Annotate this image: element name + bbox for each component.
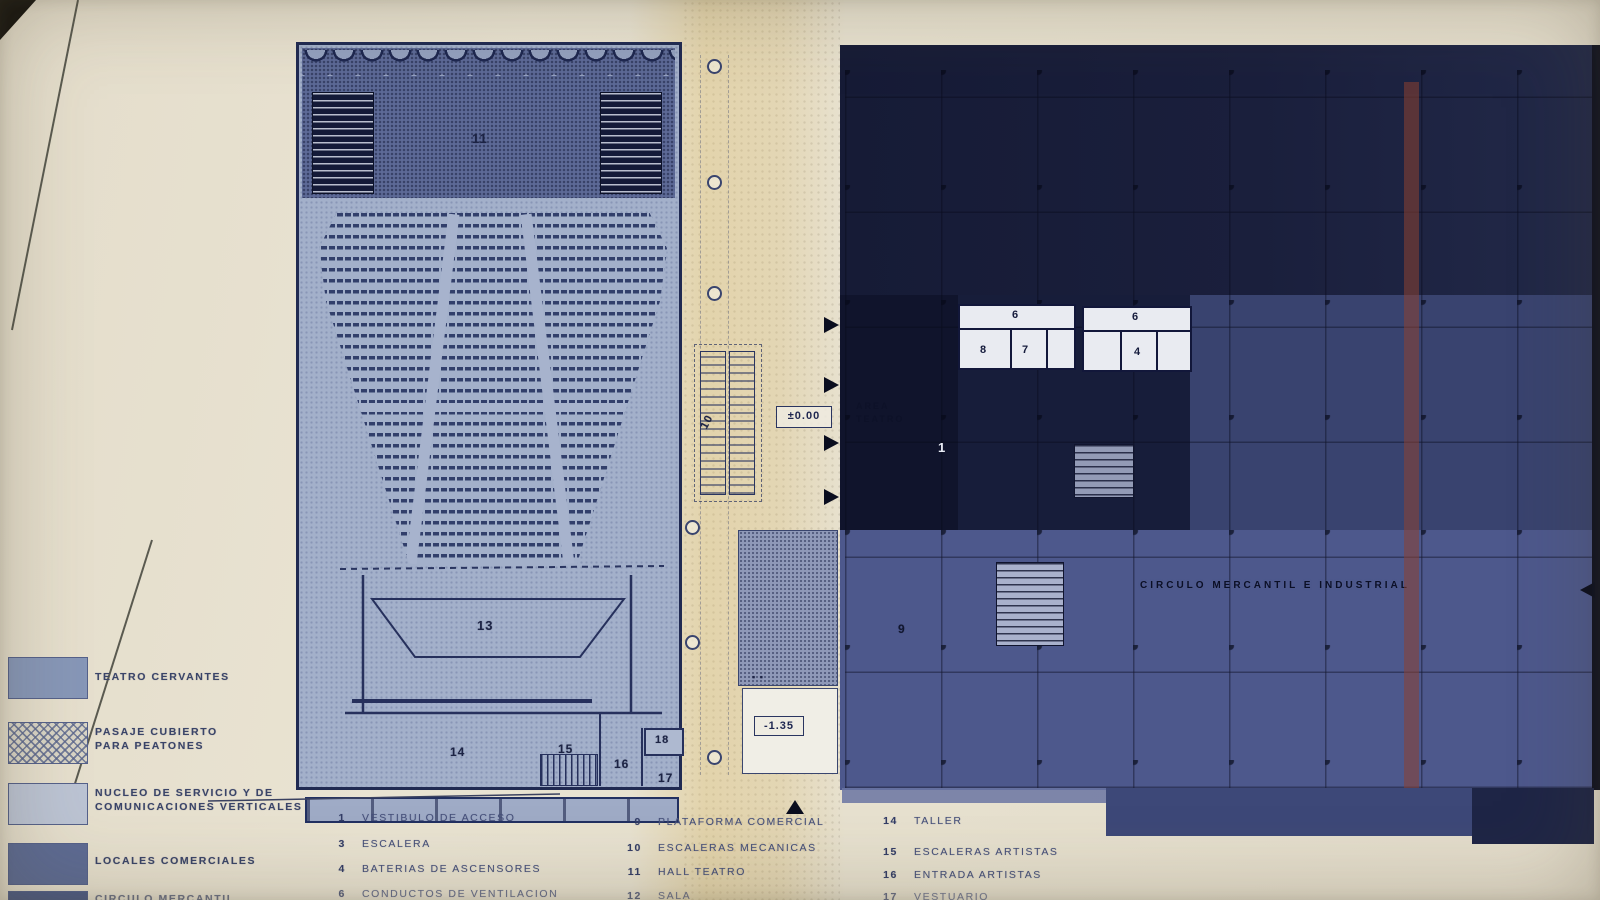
room-divider bbox=[1120, 332, 1122, 372]
survey-dots: ▪ ▪ bbox=[752, 672, 764, 682]
legend-label: PARA PEATONES bbox=[95, 740, 204, 752]
label-room-18: 18 bbox=[655, 734, 669, 746]
room-divider bbox=[1046, 330, 1048, 370]
label-lobby-1: 1 bbox=[938, 440, 946, 455]
architectural-plan-scan: 11 13 14 15 16 17 18 PLAZA PABLO CAZARO … bbox=[0, 0, 1600, 900]
building-bottom-step-1 bbox=[842, 788, 1106, 803]
legend-swatch-pasaje bbox=[8, 722, 88, 764]
key-row: 1VESTIBULO DE ACCESO bbox=[318, 812, 516, 824]
north-arrow-icon bbox=[786, 800, 804, 814]
aisle-left bbox=[405, 214, 459, 565]
label-room-7: 7 bbox=[1022, 344, 1029, 356]
key-row: 12SALA bbox=[614, 890, 691, 900]
key-row: 14TALLER bbox=[870, 815, 963, 827]
label-room-14: 14 bbox=[450, 745, 465, 759]
column-marker-icon bbox=[685, 635, 700, 650]
leader-line-top bbox=[12, 0, 78, 330]
legend-swatch-locales bbox=[8, 843, 88, 885]
key-row: 4BATERIAS DE ASCENSORES bbox=[318, 863, 541, 875]
building-bottom-step-2 bbox=[1106, 788, 1492, 836]
legend-label: TEATRO CERVANTES bbox=[95, 671, 230, 683]
column-marker-icon bbox=[707, 175, 722, 190]
escalator-lane-2 bbox=[729, 351, 755, 495]
hall-stair-right bbox=[600, 92, 662, 194]
service-group-b: 6 4 bbox=[1082, 306, 1192, 372]
entrance-arrow-icon bbox=[824, 489, 839, 505]
building-stairs-block bbox=[996, 562, 1064, 646]
legend-swatch-nucleo bbox=[8, 783, 88, 825]
entrance-arrow-icon bbox=[824, 435, 839, 451]
hall-stair-left bbox=[312, 92, 374, 194]
service-group-a: 6 8 7 bbox=[958, 304, 1076, 370]
level-marker-zero: ±0.00 bbox=[776, 406, 832, 428]
stairs-room-15 bbox=[540, 754, 598, 786]
aisle-right bbox=[520, 214, 574, 565]
legend-label: CIRCULO MERCANTIL bbox=[95, 893, 235, 900]
label-duct-a: 6 bbox=[1012, 309, 1019, 321]
label-room-4: 4 bbox=[1134, 346, 1141, 358]
key-row: 17VESTUARIO bbox=[870, 891, 989, 900]
legend-label: LOCALES COMERCIALES bbox=[95, 855, 256, 867]
key-row: 3ESCALERA bbox=[318, 838, 431, 850]
legend-label: PASAJE CUBIERTO bbox=[95, 726, 218, 738]
label-platform-9: 9 bbox=[898, 622, 906, 636]
building-right-edge bbox=[1592, 45, 1600, 790]
key-row: 11HALL TEATRO bbox=[614, 866, 746, 878]
label-room-8: 8 bbox=[980, 344, 987, 356]
entrance-arrow-icon bbox=[824, 377, 839, 393]
label-duct-b: 6 bbox=[1132, 311, 1139, 323]
theater-hall bbox=[302, 48, 675, 198]
area-teatro-label: AREA TEATRO bbox=[856, 400, 904, 426]
legend-label: COMUNICACIONES VERTICALES bbox=[95, 801, 302, 813]
building-top-band bbox=[840, 45, 1600, 295]
building-name-label: CIRCULO MERCANTIL E INDUSTRIAL bbox=[1140, 580, 1440, 591]
label-room-16: 16 bbox=[614, 757, 629, 771]
column-marker-icon bbox=[707, 59, 722, 74]
column-marker-icon bbox=[707, 750, 722, 765]
passage-lower-block bbox=[738, 530, 838, 686]
key-row: 10ESCALERAS MECANICAS bbox=[614, 842, 817, 854]
seating-area bbox=[319, 213, 667, 565]
building-mid-right bbox=[1190, 295, 1600, 530]
key-row: 6CONDUCTOS DE VENTILACION bbox=[318, 888, 558, 900]
corner-wedge bbox=[0, 0, 36, 40]
legend-swatch-circulo bbox=[8, 891, 88, 900]
building-lower bbox=[840, 530, 1600, 790]
building-bottom-step-3 bbox=[1472, 788, 1594, 844]
legend-swatch-teatro bbox=[8, 657, 88, 699]
label-hall: 11 bbox=[472, 131, 488, 146]
key-row: 15ESCALERAS ARTISTAS bbox=[870, 846, 1059, 858]
theater-plan bbox=[296, 42, 682, 790]
label-room-17: 17 bbox=[658, 771, 673, 785]
label-stage: 13 bbox=[477, 618, 493, 633]
key-row: 16ENTRADA ARTISTAS bbox=[870, 869, 1042, 881]
duct-strip-b: 6 bbox=[1084, 308, 1190, 332]
column-marker-icon bbox=[707, 286, 722, 301]
entrance-arrow-icon bbox=[824, 317, 839, 333]
key-row: 9PLATAFORMA COMERCIAL bbox=[614, 816, 824, 828]
edge-arrow-icon bbox=[1580, 582, 1595, 598]
entrance-door-arcs bbox=[302, 50, 675, 76]
duct-strip-a: 6 bbox=[960, 306, 1074, 330]
service-rooms-band: 6 8 7 6 4 bbox=[956, 298, 1194, 376]
level-marker-lower: -1.35 bbox=[754, 716, 804, 736]
red-registration-stripe bbox=[1404, 82, 1419, 790]
room-divider bbox=[1156, 332, 1158, 372]
room-divider bbox=[1010, 330, 1012, 370]
building-stairs-small bbox=[1074, 444, 1134, 498]
aisle-cross bbox=[319, 403, 667, 412]
column-marker-icon bbox=[685, 520, 700, 535]
legend-label: NUCLEO DE SERVICIO Y DE bbox=[95, 787, 274, 799]
